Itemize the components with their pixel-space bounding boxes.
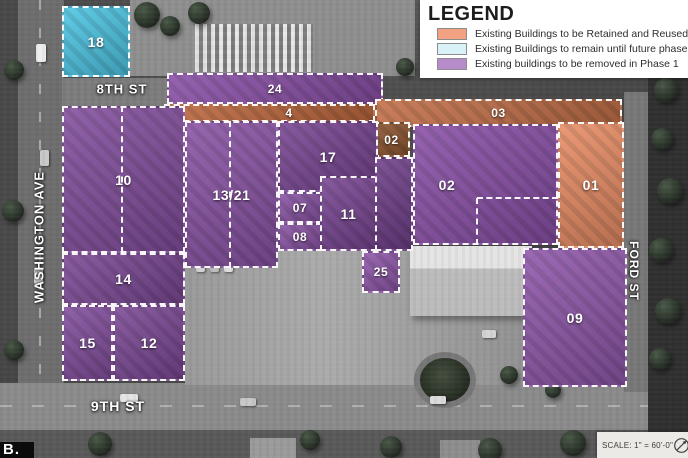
scale-bar: SCALE: 1" = 60'-0" bbox=[597, 432, 688, 458]
parcel-divider bbox=[121, 106, 123, 253]
building-label: 15 bbox=[79, 335, 96, 351]
legend-item: Existing Buildings to remain until futur… bbox=[437, 41, 688, 56]
legend-item: Existing Buildings to be Retained and Re… bbox=[437, 26, 688, 41]
parcel-divider bbox=[477, 197, 558, 199]
legend-item-label: Existing Buildings to be Retained and Re… bbox=[475, 28, 688, 40]
building-label: 08 bbox=[293, 230, 308, 244]
legend-items: Existing Buildings to be Retained and Re… bbox=[428, 26, 688, 71]
legend-swatch-retained bbox=[437, 28, 467, 40]
logo-fragment: B. bbox=[0, 442, 34, 458]
building-label: 10 bbox=[115, 172, 132, 188]
building-12: 12 bbox=[113, 305, 185, 381]
building-09: 09 bbox=[523, 248, 627, 387]
building-11: 11 bbox=[320, 176, 377, 251]
building-label: 11 bbox=[341, 206, 357, 222]
building-02: 02 bbox=[413, 124, 558, 245]
legend-item-label: Existing buildings to be removed in Phas… bbox=[475, 58, 679, 70]
building-strip bbox=[375, 157, 413, 251]
building-label: 14 bbox=[115, 271, 132, 287]
building-label: 25 bbox=[374, 265, 389, 279]
north-arrow-icon bbox=[673, 437, 688, 454]
legend-item-label: Existing Buildings to remain until futur… bbox=[475, 43, 687, 55]
building-10: 10 bbox=[62, 106, 185, 253]
site-plan-map: 18244030202011014151213/21170708112509 8… bbox=[0, 0, 688, 458]
building-label: 24 bbox=[268, 82, 283, 96]
scale-text: SCALE: 1" = 60'-0" bbox=[602, 441, 673, 450]
building-label: 01 bbox=[583, 177, 600, 193]
building-label: 18 bbox=[88, 34, 105, 50]
legend: LEGEND Existing Buildings to be Retained… bbox=[420, 0, 688, 78]
building-01: 01 bbox=[558, 122, 624, 248]
street-label-8th-st: 8TH ST bbox=[97, 82, 148, 97]
building-13-21: 13/21 bbox=[185, 121, 278, 268]
legend-swatch-removed bbox=[437, 58, 467, 70]
building-24: 24 bbox=[167, 73, 383, 104]
building-07: 07 bbox=[278, 192, 322, 223]
legend-swatch-future bbox=[437, 43, 467, 55]
building-label: 03 bbox=[491, 106, 506, 120]
building-label: 02 bbox=[384, 133, 399, 147]
building-18: 18 bbox=[62, 6, 130, 77]
street-label-9th-st: 9TH ST bbox=[91, 398, 145, 414]
building-label: 09 bbox=[567, 310, 584, 326]
building-label: 13/21 bbox=[212, 187, 250, 203]
building-label: 07 bbox=[293, 201, 308, 215]
building-02a: 02 bbox=[373, 122, 410, 157]
legend-title: LEGEND bbox=[428, 2, 688, 26]
building-14: 14 bbox=[62, 253, 185, 305]
building-label: 17 bbox=[320, 149, 337, 165]
building-25: 25 bbox=[362, 251, 400, 293]
parcel-divider bbox=[229, 121, 231, 268]
building-08: 08 bbox=[278, 223, 322, 251]
street-label-washington-ave: WASHINGTON AVE bbox=[32, 171, 47, 303]
building-15: 15 bbox=[62, 305, 113, 381]
parcel-divider bbox=[476, 198, 478, 245]
street-label-ford-st: FORD ST bbox=[627, 241, 641, 301]
building-label: 02 bbox=[439, 177, 456, 193]
building-4: 4 bbox=[164, 104, 375, 122]
building-label: 4 bbox=[285, 106, 292, 120]
legend-item: Existing buildings to be removed in Phas… bbox=[437, 56, 688, 71]
building-label: 12 bbox=[141, 335, 158, 351]
